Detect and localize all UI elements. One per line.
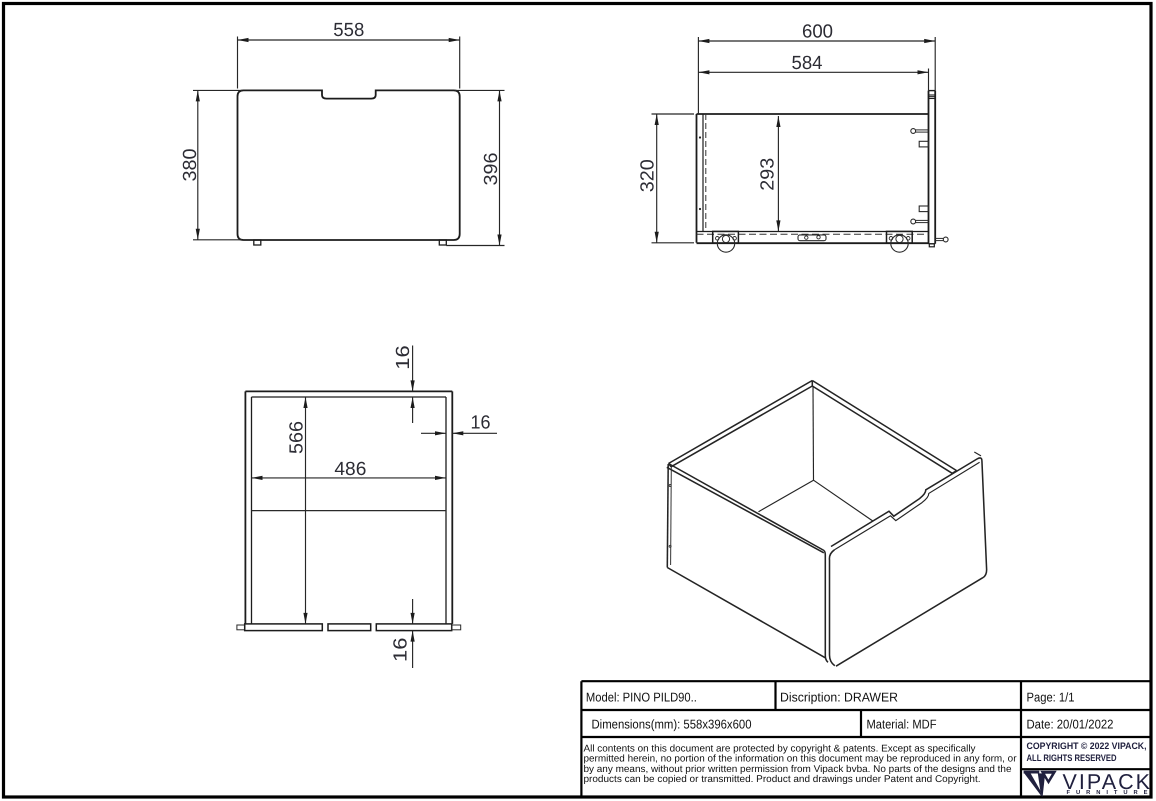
svg-text:16: 16 xyxy=(391,637,412,662)
svg-text:Model: PINO PILD90..: Model: PINO PILD90.. xyxy=(586,690,697,705)
svg-text:COPYRIGHT © 2022 VIPACK,: COPYRIGHT © 2022 VIPACK, xyxy=(1027,740,1147,751)
svg-text:584: 584 xyxy=(792,53,823,74)
svg-text:396: 396 xyxy=(481,153,502,186)
svg-text:486: 486 xyxy=(334,459,366,480)
svg-text:Discription: DRAWER: Discription: DRAWER xyxy=(780,690,898,705)
svg-text:16: 16 xyxy=(393,345,414,370)
svg-text:ALL RIGHTS RESERVED: ALL RIGHTS RESERVED xyxy=(1027,752,1117,763)
svg-text:558: 558 xyxy=(333,20,364,41)
svg-text:566: 566 xyxy=(287,421,308,454)
svg-text:Date: 20/01/2022: Date: 20/01/2022 xyxy=(1027,717,1114,732)
svg-text:products can be copied or tran: products can be copied or transmitted. P… xyxy=(584,774,981,785)
svg-text:600: 600 xyxy=(802,22,833,43)
svg-text:320: 320 xyxy=(638,159,659,192)
svg-text:FURNITURE: FURNITURE xyxy=(1067,790,1148,796)
svg-text:Page: 1/1: Page: 1/1 xyxy=(1027,690,1075,705)
svg-text:293: 293 xyxy=(758,158,779,191)
svg-text:Material: MDF: Material: MDF xyxy=(867,717,937,732)
svg-text:Dimensions(mm): 558x396x600: Dimensions(mm): 558x396x600 xyxy=(592,717,752,732)
svg-text:380: 380 xyxy=(180,149,201,182)
svg-text:16: 16 xyxy=(471,413,491,434)
